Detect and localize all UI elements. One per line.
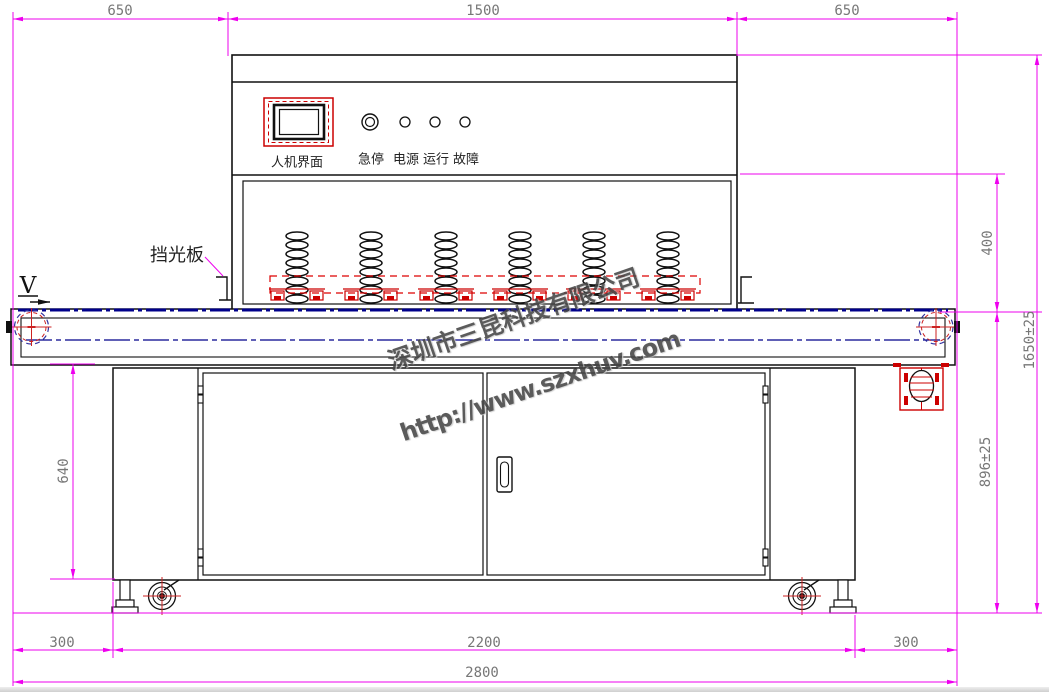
hinge xyxy=(198,386,203,403)
hmi-screen xyxy=(264,98,333,146)
direction-label: V xyxy=(20,273,37,299)
hmi-label: 人机界面 xyxy=(271,152,323,171)
dim-bottom-right: 300 xyxy=(893,635,918,651)
window-bottom-edge xyxy=(0,687,1049,692)
run-label: 运行 xyxy=(423,149,449,168)
leveling-foot-left xyxy=(112,580,138,613)
caster-left xyxy=(143,577,181,615)
hinge xyxy=(763,386,768,403)
dim-top-center: 1500 xyxy=(466,3,500,19)
light-shield-right xyxy=(738,277,754,303)
light-shield-label: 挡光板 xyxy=(150,241,204,267)
dim-bottom-left: 300 xyxy=(49,635,74,651)
tensioner-left xyxy=(6,321,12,333)
caster-right xyxy=(783,577,821,615)
machine-drawing xyxy=(0,0,1049,692)
light-shield-left xyxy=(216,277,231,300)
dim-bottom-total: 2800 xyxy=(465,665,499,681)
dim-belt-height: 896±25 xyxy=(978,437,994,488)
feet-and-casters xyxy=(112,577,856,615)
dim-chamber-to-belt: 400 xyxy=(980,230,996,255)
dim-top-left: 650 xyxy=(107,3,132,19)
dim-cabinet-height: 640 xyxy=(56,458,72,483)
dim-bottom-center: 2200 xyxy=(467,635,501,651)
drive-motor xyxy=(893,363,949,410)
hinge xyxy=(763,549,768,566)
fault-label: 故障 xyxy=(453,149,479,168)
power-label: 电源 xyxy=(393,149,419,168)
hinge xyxy=(198,549,203,566)
dim-total-height: 1650±25 xyxy=(1022,310,1038,369)
estop-label: 急停 xyxy=(358,149,384,168)
machine-drawing-page: 650 1500 650 640 400 896±25 1650±25 300 … xyxy=(0,0,1049,692)
leveling-foot-right xyxy=(830,580,856,613)
dim-top-right: 650 xyxy=(834,3,859,19)
